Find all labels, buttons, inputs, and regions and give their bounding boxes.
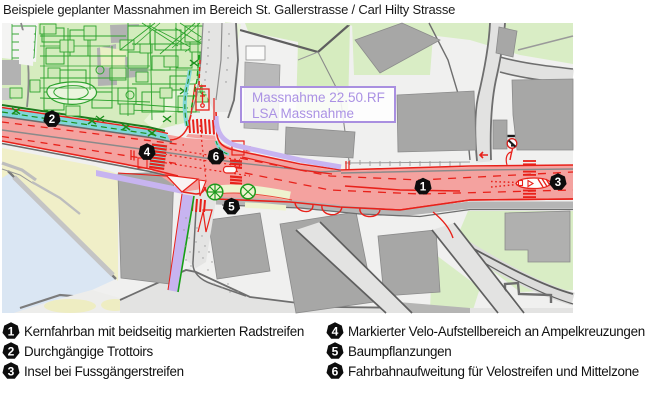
svg-text:LSA Massnahme: LSA Massnahme — [252, 106, 354, 121]
svg-text:1: 1 — [8, 324, 15, 338]
svg-text:6: 6 — [332, 364, 339, 378]
svg-text:Massnahme 22.50.RF: Massnahme 22.50.RF — [252, 90, 385, 105]
svg-text:3: 3 — [555, 177, 561, 189]
svg-text:5: 5 — [332, 344, 339, 358]
svg-text:3: 3 — [8, 364, 15, 378]
svg-text:4: 4 — [332, 324, 339, 338]
svg-text:5: 5 — [228, 202, 235, 214]
svg-text:1: 1 — [420, 182, 427, 194]
svg-text:2: 2 — [8, 344, 15, 358]
svg-text:2: 2 — [49, 114, 55, 126]
svg-text:6: 6 — [213, 152, 219, 164]
svg-text:4: 4 — [144, 147, 151, 159]
